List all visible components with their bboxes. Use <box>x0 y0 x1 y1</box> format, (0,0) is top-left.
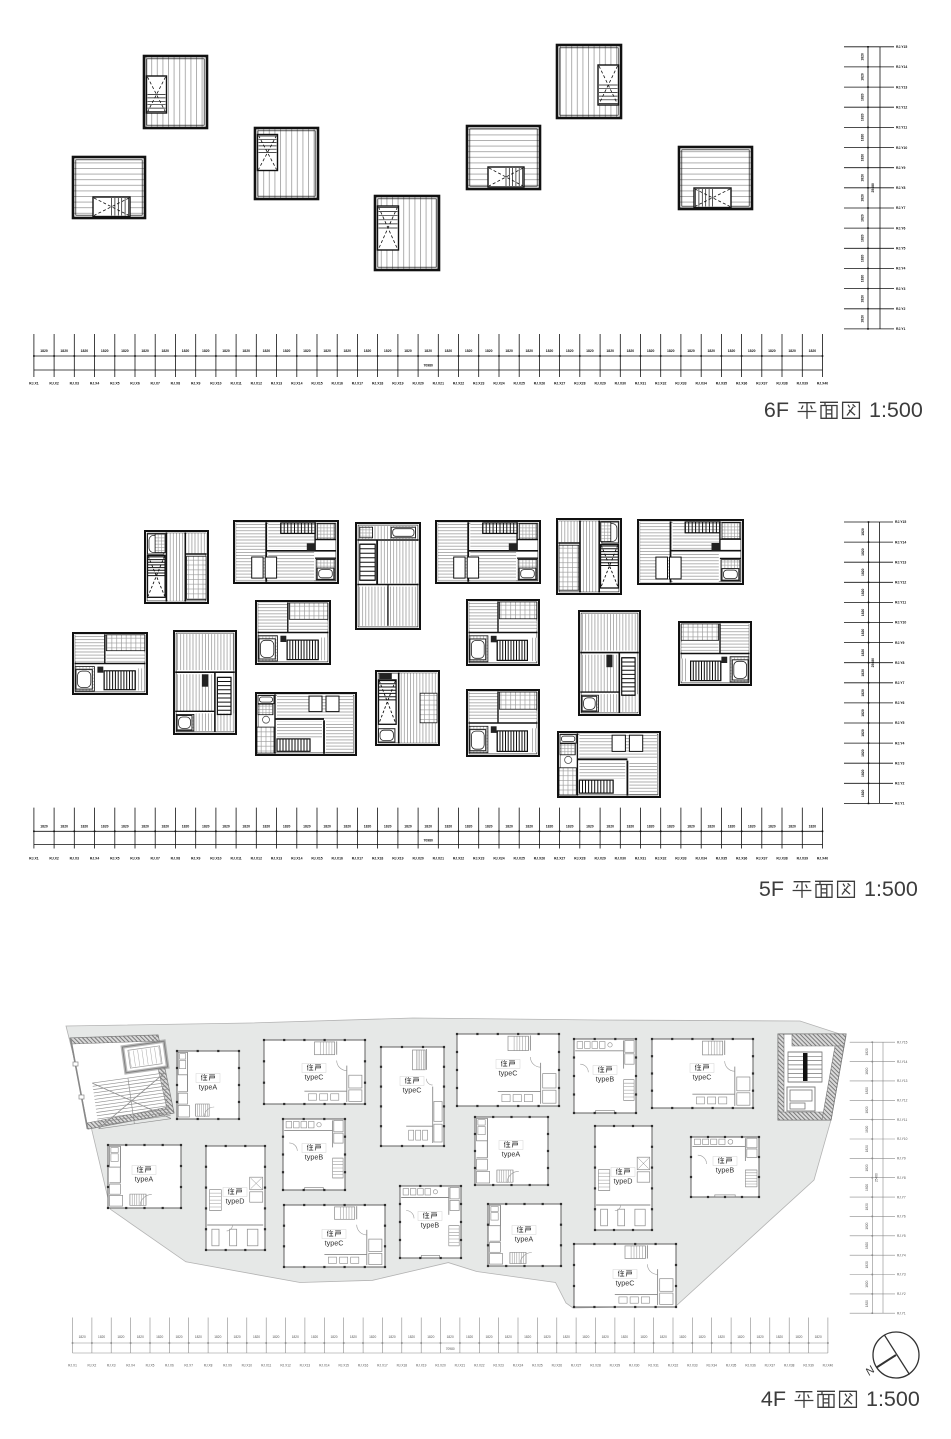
svg-text:1820: 1820 <box>242 825 250 829</box>
svg-text:RJ.Y10: RJ.Y10 <box>896 146 907 150</box>
svg-text:1820: 1820 <box>748 825 756 829</box>
svg-text:RJ.X12: RJ.X12 <box>251 857 262 861</box>
svg-text:RJ.Y3: RJ.Y3 <box>895 761 905 765</box>
svg-text:1820: 1820 <box>98 1335 105 1339</box>
svg-text:RJ.X25: RJ.X25 <box>532 1364 543 1368</box>
svg-text:RJ.X20: RJ.X20 <box>412 857 423 861</box>
svg-text:typeC: typeC <box>305 1073 324 1082</box>
svg-text:1820: 1820 <box>546 825 554 829</box>
svg-text:1820: 1820 <box>544 1335 551 1339</box>
svg-text:1:500: 1:500 <box>869 398 923 422</box>
svg-text:typeB: typeB <box>305 1153 324 1162</box>
svg-text:1820: 1820 <box>566 349 574 353</box>
svg-text:RJ.X13: RJ.X13 <box>271 382 282 386</box>
svg-text:1820: 1820 <box>162 349 170 353</box>
svg-text:1820: 1820 <box>865 1184 869 1191</box>
svg-text:RJ.X5: RJ.X5 <box>110 857 120 861</box>
svg-text:RJ.X29: RJ.X29 <box>594 857 605 861</box>
svg-text:1820: 1820 <box>861 194 865 202</box>
svg-text:RJ.X24: RJ.X24 <box>493 382 504 386</box>
svg-text:RJ.X2: RJ.X2 <box>88 1364 97 1368</box>
svg-text:1820: 1820 <box>323 349 331 353</box>
svg-text:RJ.X23: RJ.X23 <box>493 1364 504 1368</box>
svg-text:1820: 1820 <box>640 1335 647 1339</box>
svg-text:RJ.X26: RJ.X26 <box>552 1364 563 1368</box>
svg-text:1820: 1820 <box>865 1222 869 1229</box>
svg-text:RJ.X34: RJ.X34 <box>706 1364 717 1368</box>
svg-text:RJ.X8: RJ.X8 <box>204 1364 213 1368</box>
svg-text:1820: 1820 <box>408 1335 415 1339</box>
svg-text:1820: 1820 <box>861 234 865 242</box>
svg-text:RJ.X18: RJ.X18 <box>397 1364 408 1368</box>
svg-text:RJ.X28: RJ.X28 <box>590 1364 601 1368</box>
svg-text:1820: 1820 <box>861 548 865 556</box>
svg-text:RJ.X10: RJ.X10 <box>210 857 221 861</box>
svg-text:RJ.Y9: RJ.Y9 <box>897 1157 906 1161</box>
svg-text:RJ.X3: RJ.X3 <box>107 1364 116 1368</box>
svg-text:RJ.X11: RJ.X11 <box>261 1364 271 1368</box>
svg-text:1820: 1820 <box>861 749 865 757</box>
svg-text:RJ.Y13: RJ.Y13 <box>895 560 906 564</box>
svg-text:1820: 1820 <box>757 1335 764 1339</box>
svg-text:1820: 1820 <box>505 1335 512 1339</box>
svg-text:RJ.X27: RJ.X27 <box>554 382 565 386</box>
svg-text:1820: 1820 <box>621 1335 628 1339</box>
svg-text:RJ.Y6: RJ.Y6 <box>895 701 905 705</box>
svg-text:1820: 1820 <box>141 349 149 353</box>
svg-text:1820: 1820 <box>627 349 635 353</box>
svg-text:1820: 1820 <box>602 1335 609 1339</box>
svg-text:RJ.X28: RJ.X28 <box>574 382 585 386</box>
svg-text:RJ.X1: RJ.X1 <box>68 1364 77 1368</box>
svg-text:1820: 1820 <box>667 349 675 353</box>
svg-text:RJ.X22: RJ.X22 <box>453 857 464 861</box>
svg-text:RJ.Y12: RJ.Y12 <box>895 581 906 585</box>
svg-text:1820: 1820 <box>427 1335 434 1339</box>
svg-text:RJ.X38: RJ.X38 <box>776 382 787 386</box>
svg-text:1820: 1820 <box>182 349 190 353</box>
svg-text:RJ.X18: RJ.X18 <box>372 857 383 861</box>
svg-text:1820: 1820 <box>121 349 129 353</box>
svg-text:4F: 4F <box>761 1387 786 1411</box>
svg-text:RJ.X7: RJ.X7 <box>150 382 160 386</box>
svg-text:RJ.X4: RJ.X4 <box>126 1364 135 1368</box>
svg-text:RJ.Y11: RJ.Y11 <box>895 601 906 605</box>
svg-text:1820: 1820 <box>865 1048 869 1055</box>
svg-text:RJ.Y15: RJ.Y15 <box>895 520 906 524</box>
svg-text:RJ.X24: RJ.X24 <box>513 1364 524 1368</box>
svg-text:RJ.X36: RJ.X36 <box>745 1364 756 1368</box>
svg-text:RJ.X40: RJ.X40 <box>817 382 828 386</box>
svg-text:1820: 1820 <box>424 825 432 829</box>
svg-text:RJ.Y15: RJ.Y15 <box>896 45 907 49</box>
svg-text:RJ.X35: RJ.X35 <box>716 857 727 861</box>
svg-text:1820: 1820 <box>687 349 695 353</box>
svg-text:1820: 1820 <box>861 669 865 677</box>
svg-text:RJ.Y7: RJ.Y7 <box>896 206 906 210</box>
svg-text:RJ.X33: RJ.X33 <box>675 857 686 861</box>
svg-text:RJ.Y11: RJ.Y11 <box>897 1118 907 1122</box>
svg-text:1820: 1820 <box>861 790 865 798</box>
svg-text:1820: 1820 <box>861 154 865 162</box>
svg-text:RJ.X12: RJ.X12 <box>280 1364 291 1368</box>
svg-text:RJ.X29: RJ.X29 <box>610 1364 621 1368</box>
svg-text:6F: 6F <box>764 398 789 422</box>
svg-text:RJ.Y4: RJ.Y4 <box>896 267 906 271</box>
svg-text:1820: 1820 <box>311 1335 318 1339</box>
svg-text:1820: 1820 <box>815 1335 822 1339</box>
svg-text:RJ.X29: RJ.X29 <box>594 382 605 386</box>
svg-text:1820: 1820 <box>586 825 594 829</box>
svg-text:1820: 1820 <box>546 349 554 353</box>
svg-text:1820: 1820 <box>263 825 271 829</box>
svg-text:RJ.Y5: RJ.Y5 <box>895 721 905 725</box>
svg-text:RJ.X14: RJ.X14 <box>291 382 302 386</box>
svg-text:RJ.X11: RJ.X11 <box>231 857 242 861</box>
svg-text:1820: 1820 <box>175 1335 182 1339</box>
svg-text:1820: 1820 <box>660 1335 667 1339</box>
svg-text:RJ.X32: RJ.X32 <box>655 857 666 861</box>
svg-text:RJ.Y9: RJ.Y9 <box>896 166 906 170</box>
svg-text:1820: 1820 <box>606 825 614 829</box>
svg-text:1820: 1820 <box>679 1335 686 1339</box>
svg-text:1820: 1820 <box>627 825 635 829</box>
svg-text:1820: 1820 <box>389 1335 396 1339</box>
svg-text:25480: 25480 <box>875 1173 879 1182</box>
svg-text:1820: 1820 <box>141 825 149 829</box>
svg-text:RJ.X30: RJ.X30 <box>615 382 626 386</box>
svg-text:RJ.X19: RJ.X19 <box>392 857 403 861</box>
svg-text:RJ.X21: RJ.X21 <box>433 382 444 386</box>
svg-text:1820: 1820 <box>234 1335 241 1339</box>
svg-text:typeC: typeC <box>403 1086 422 1095</box>
svg-text:RJ.X10: RJ.X10 <box>210 382 221 386</box>
svg-text:1820: 1820 <box>202 825 210 829</box>
svg-text:1820: 1820 <box>788 825 796 829</box>
svg-text:1820: 1820 <box>505 825 513 829</box>
svg-text:1820: 1820 <box>861 568 865 576</box>
svg-text:RJ.Y15: RJ.Y15 <box>897 1040 908 1044</box>
svg-text:25480: 25480 <box>871 183 875 193</box>
svg-text:RJ.X23: RJ.X23 <box>473 857 484 861</box>
svg-text:1820: 1820 <box>667 825 675 829</box>
svg-text:1820: 1820 <box>40 349 48 353</box>
svg-text:RJ.X30: RJ.X30 <box>629 1364 640 1368</box>
svg-text:RJ.X7: RJ.X7 <box>184 1364 193 1368</box>
svg-text:RJ.Y10: RJ.Y10 <box>895 621 906 625</box>
svg-text:RJ.X23: RJ.X23 <box>473 382 484 386</box>
svg-text:typeA: typeA <box>515 1235 534 1244</box>
svg-text:1820: 1820 <box>222 825 230 829</box>
svg-text:RJ.X34: RJ.X34 <box>696 857 707 861</box>
svg-text:RJ.X39: RJ.X39 <box>797 857 808 861</box>
svg-text:70980: 70980 <box>446 1347 455 1351</box>
svg-text:1820: 1820 <box>861 93 865 101</box>
svg-text:RJ.X8: RJ.X8 <box>171 857 181 861</box>
svg-text:RJ.X17: RJ.X17 <box>352 382 363 386</box>
svg-text:RJ.X31: RJ.X31 <box>635 382 646 386</box>
svg-text:typeC: typeC <box>499 1069 518 1078</box>
svg-text:RJ.X16: RJ.X16 <box>358 1364 369 1368</box>
svg-text:1820: 1820 <box>748 349 756 353</box>
svg-text:1820: 1820 <box>384 825 392 829</box>
svg-text:1820: 1820 <box>861 255 865 263</box>
svg-text:RJ.X35: RJ.X35 <box>726 1364 737 1368</box>
svg-text:RJ.X33: RJ.X33 <box>687 1364 698 1368</box>
svg-text:RJ.X31: RJ.X31 <box>648 1364 659 1368</box>
svg-text:1820: 1820 <box>861 214 865 222</box>
svg-text:RJ.X35: RJ.X35 <box>716 382 727 386</box>
svg-text:RJ.X16: RJ.X16 <box>332 857 343 861</box>
svg-text:RJ.Y5: RJ.Y5 <box>896 247 906 251</box>
svg-text:typeB: typeB <box>716 1166 735 1175</box>
svg-text:1820: 1820 <box>424 349 432 353</box>
svg-text:1820: 1820 <box>647 349 655 353</box>
svg-text:1820: 1820 <box>485 1335 492 1339</box>
svg-text:1820: 1820 <box>323 825 331 829</box>
svg-text:RJ.Y7: RJ.Y7 <box>895 681 905 685</box>
svg-text:1820: 1820 <box>137 1335 144 1339</box>
svg-text:RJ.X19: RJ.X19 <box>392 382 403 386</box>
svg-text:1820: 1820 <box>865 1203 869 1210</box>
svg-text:1820: 1820 <box>384 349 392 353</box>
svg-text:RJ.X3: RJ.X3 <box>70 382 80 386</box>
svg-text:typeC: typeC <box>693 1073 712 1082</box>
svg-text:1820: 1820 <box>263 349 271 353</box>
svg-text:1820: 1820 <box>526 825 534 829</box>
svg-text:RJ.X1: RJ.X1 <box>29 857 39 861</box>
svg-text:1820: 1820 <box>40 825 48 829</box>
svg-text:RJ.X36: RJ.X36 <box>736 857 747 861</box>
svg-text:RJ.Y14: RJ.Y14 <box>895 540 906 544</box>
svg-text:1:500: 1:500 <box>864 877 918 901</box>
svg-text:1820: 1820 <box>60 825 68 829</box>
svg-text:RJ.X15: RJ.X15 <box>311 857 322 861</box>
svg-text:1820: 1820 <box>861 589 865 597</box>
svg-text:1820: 1820 <box>242 349 250 353</box>
svg-text:RJ.X14: RJ.X14 <box>291 857 302 861</box>
svg-text:1820: 1820 <box>865 1067 869 1074</box>
svg-text:1820: 1820 <box>214 1335 221 1339</box>
svg-text:1820: 1820 <box>79 1335 86 1339</box>
svg-text:1820: 1820 <box>344 349 352 353</box>
svg-text:RJ.X32: RJ.X32 <box>655 382 666 386</box>
svg-text:1820: 1820 <box>865 1280 869 1287</box>
svg-text:typeB: typeB <box>421 1221 440 1230</box>
svg-text:RJ.X8: RJ.X8 <box>171 382 181 386</box>
svg-text:1820: 1820 <box>687 825 695 829</box>
svg-text:1820: 1820 <box>222 349 230 353</box>
svg-text:1820: 1820 <box>809 825 817 829</box>
svg-text:RJ.X21: RJ.X21 <box>433 857 444 861</box>
svg-text:RJ.X26: RJ.X26 <box>534 382 545 386</box>
svg-text:RJ.X25: RJ.X25 <box>514 382 525 386</box>
svg-text:1820: 1820 <box>861 629 865 637</box>
svg-text:1820: 1820 <box>447 1335 454 1339</box>
svg-text:RJ.X16: RJ.X16 <box>332 382 343 386</box>
svg-text:1820: 1820 <box>776 1335 783 1339</box>
svg-text:RJ.X40: RJ.X40 <box>817 857 828 861</box>
svg-text:RJ.Y1: RJ.Y1 <box>897 1311 906 1315</box>
svg-text:1820: 1820 <box>708 349 716 353</box>
svg-text:RJ.Y6: RJ.Y6 <box>896 226 906 230</box>
svg-text:1820: 1820 <box>350 1335 357 1339</box>
svg-text:RJ.X28: RJ.X28 <box>574 857 585 861</box>
svg-text:RJ.X3: RJ.X3 <box>70 857 80 861</box>
svg-text:RJ.X37: RJ.X37 <box>756 382 767 386</box>
svg-text:1820: 1820 <box>272 1335 279 1339</box>
svg-text:1820: 1820 <box>283 349 291 353</box>
svg-text:1820: 1820 <box>647 825 655 829</box>
svg-text:RJ.Y13: RJ.Y13 <box>897 1079 908 1083</box>
svg-text:1820: 1820 <box>728 825 736 829</box>
svg-text:1820: 1820 <box>809 349 817 353</box>
svg-text:RJ.X25: RJ.X25 <box>514 857 525 861</box>
svg-text:1820: 1820 <box>861 134 865 142</box>
svg-text:RJ.Y12: RJ.Y12 <box>896 106 907 110</box>
svg-text:RJ.X5: RJ.X5 <box>110 382 120 386</box>
svg-text:RJ.X34: RJ.X34 <box>696 382 707 386</box>
svg-text:25480: 25480 <box>871 658 875 668</box>
svg-text:1820: 1820 <box>861 113 865 121</box>
svg-text:RJ.Y4: RJ.Y4 <box>895 741 905 745</box>
svg-text:RJ.Y1: RJ.Y1 <box>895 802 905 806</box>
svg-text:1820: 1820 <box>865 1300 869 1307</box>
svg-text:RJ.Y4: RJ.Y4 <box>897 1253 906 1257</box>
svg-text:RJ.Y13: RJ.Y13 <box>896 85 907 89</box>
svg-text:1:500: 1:500 <box>866 1387 920 1411</box>
svg-text:RJ.Y9: RJ.Y9 <box>895 641 905 645</box>
svg-text:RJ.Y10: RJ.Y10 <box>897 1137 908 1141</box>
svg-text:1820: 1820 <box>303 825 311 829</box>
svg-text:1820: 1820 <box>566 825 574 829</box>
svg-text:RJ.X7: RJ.X7 <box>150 857 160 861</box>
svg-text:RJ.X38: RJ.X38 <box>776 857 787 861</box>
svg-text:1820: 1820 <box>195 1335 202 1339</box>
svg-text:1820: 1820 <box>81 825 89 829</box>
svg-text:1820: 1820 <box>865 1106 869 1113</box>
svg-text:RJ.Y1: RJ.Y1 <box>896 327 906 331</box>
svg-text:1820: 1820 <box>728 349 736 353</box>
svg-text:1820: 1820 <box>582 1335 589 1339</box>
svg-text:1820: 1820 <box>708 825 716 829</box>
svg-text:RJ.X27: RJ.X27 <box>571 1364 582 1368</box>
svg-text:1820: 1820 <box>121 825 129 829</box>
svg-text:1820: 1820 <box>698 1335 705 1339</box>
svg-text:typeC: typeC <box>325 1239 344 1248</box>
svg-text:RJ.X20: RJ.X20 <box>412 382 423 386</box>
svg-text:1820: 1820 <box>865 1261 869 1268</box>
svg-text:RJ.X6: RJ.X6 <box>165 1364 174 1368</box>
svg-text:RJ.X32: RJ.X32 <box>668 1364 679 1368</box>
svg-text:1820: 1820 <box>445 349 453 353</box>
svg-text:1820: 1820 <box>865 1145 869 1152</box>
svg-text:RJ.X9: RJ.X9 <box>191 382 201 386</box>
svg-text:RJ.X38: RJ.X38 <box>784 1364 795 1368</box>
svg-text:1820: 1820 <box>861 709 865 717</box>
svg-text:RJ.X4: RJ.X4 <box>90 382 100 386</box>
svg-text:1820: 1820 <box>861 528 865 536</box>
svg-text:1820: 1820 <box>202 349 210 353</box>
svg-text:1820: 1820 <box>865 1126 869 1133</box>
svg-text:RJ.X9: RJ.X9 <box>191 857 201 861</box>
svg-text:RJ.X15: RJ.X15 <box>338 1364 349 1368</box>
svg-text:RJ.X19: RJ.X19 <box>416 1364 427 1368</box>
svg-text:1820: 1820 <box>156 1335 163 1339</box>
svg-text:1820: 1820 <box>292 1335 299 1339</box>
svg-text:RJ.X12: RJ.X12 <box>251 382 262 386</box>
svg-text:1820: 1820 <box>485 825 493 829</box>
svg-text:1820: 1820 <box>865 1242 869 1249</box>
svg-text:RJ.X33: RJ.X33 <box>675 382 686 386</box>
svg-text:RJ.X20: RJ.X20 <box>435 1364 446 1368</box>
svg-text:1820: 1820 <box>861 73 865 81</box>
svg-text:1820: 1820 <box>768 349 776 353</box>
svg-text:1820: 1820 <box>861 729 865 737</box>
svg-text:1820: 1820 <box>344 825 352 829</box>
svg-text:1820: 1820 <box>563 1335 570 1339</box>
svg-text:RJ.Y11: RJ.Y11 <box>896 126 907 130</box>
svg-text:typeA: typeA <box>502 1150 521 1159</box>
svg-text:1820: 1820 <box>466 1335 473 1339</box>
svg-text:1820: 1820 <box>101 825 109 829</box>
svg-text:RJ.Y14: RJ.Y14 <box>896 65 907 69</box>
svg-text:70980: 70980 <box>423 839 433 843</box>
svg-text:1820: 1820 <box>101 349 109 353</box>
svg-text:1820: 1820 <box>737 1335 744 1339</box>
svg-text:typeA: typeA <box>199 1083 218 1092</box>
svg-text:1820: 1820 <box>861 649 865 657</box>
svg-text:1820: 1820 <box>404 825 412 829</box>
svg-text:1820: 1820 <box>861 609 865 617</box>
svg-text:RJ.X40: RJ.X40 <box>823 1364 834 1368</box>
svg-text:1820: 1820 <box>861 174 865 182</box>
svg-text:RJ.X27: RJ.X27 <box>554 857 565 861</box>
svg-text:1820: 1820 <box>865 1164 869 1171</box>
svg-text:RJ.X31: RJ.X31 <box>635 857 646 861</box>
svg-text:RJ.X10: RJ.X10 <box>242 1364 253 1368</box>
svg-text:RJ.Y2: RJ.Y2 <box>897 1292 906 1296</box>
svg-text:typeA: typeA <box>135 1175 154 1184</box>
svg-text:1820: 1820 <box>283 825 291 829</box>
svg-text:RJ.X39: RJ.X39 <box>797 382 808 386</box>
svg-text:1820: 1820 <box>117 1335 124 1339</box>
svg-text:1820: 1820 <box>861 295 865 303</box>
svg-text:1820: 1820 <box>445 825 453 829</box>
svg-text:RJ.Y5: RJ.Y5 <box>897 1234 906 1238</box>
svg-text:1820: 1820 <box>162 825 170 829</box>
svg-text:RJ.X22: RJ.X22 <box>474 1364 485 1368</box>
svg-text:1820: 1820 <box>524 1335 531 1339</box>
svg-text:1820: 1820 <box>526 349 534 353</box>
svg-text:RJ.Y2: RJ.Y2 <box>895 782 905 786</box>
svg-text:RJ.X17: RJ.X17 <box>352 857 363 861</box>
svg-text:RJ.X37: RJ.X37 <box>756 857 767 861</box>
svg-text:RJ.X22: RJ.X22 <box>453 382 464 386</box>
svg-text:RJ.X2: RJ.X2 <box>49 382 59 386</box>
svg-text:1820: 1820 <box>861 315 865 323</box>
svg-text:RJ.Y3: RJ.Y3 <box>896 287 906 291</box>
svg-text:typeB: typeB <box>596 1075 615 1084</box>
svg-text:1820: 1820 <box>795 1335 802 1339</box>
svg-text:1820: 1820 <box>369 1335 376 1339</box>
svg-text:1820: 1820 <box>182 825 190 829</box>
svg-text:RJ.X2: RJ.X2 <box>49 857 59 861</box>
svg-text:typeD: typeD <box>614 1177 633 1186</box>
svg-text:RJ.Y8: RJ.Y8 <box>895 661 905 665</box>
svg-text:1820: 1820 <box>865 1087 869 1094</box>
svg-text:1820: 1820 <box>788 349 796 353</box>
